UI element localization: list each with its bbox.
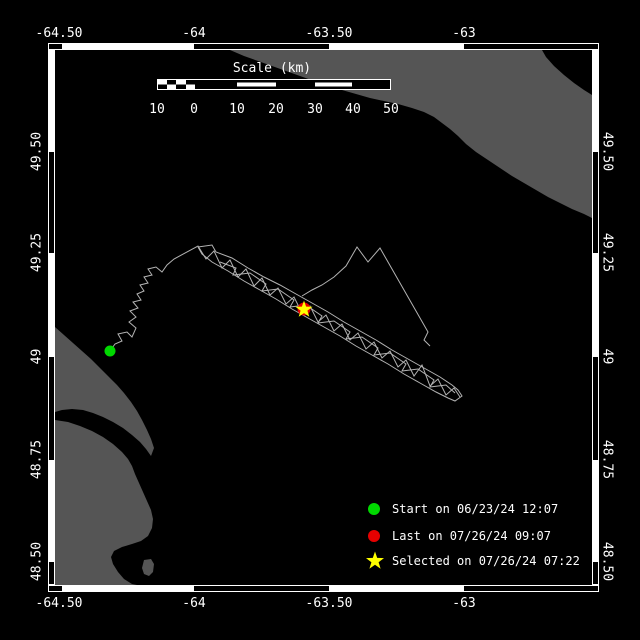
scalebar-segment-0-10 [195, 80, 238, 89]
legend-selected-label: Selected on 07/26/24 07:22 [392, 553, 602, 569]
map-canvas [0, 0, 640, 640]
legend-last-label: Last on 07/26/24 09:07 [392, 528, 602, 544]
scalebar-checker-section [158, 80, 195, 89]
track-path-main [110, 246, 460, 397]
start-position-marker [105, 346, 116, 357]
scalebar-segment-40-50 [352, 80, 390, 89]
axis-label-bottom-3: -63.50 [289, 596, 369, 611]
legend-start-label: Start on 06/23/24 12:07 [392, 501, 602, 517]
axis-label-bottom-2: -64 [154, 596, 234, 611]
map-viewport: -64.50 -64 -63.50 -63 -64.50 -64 -63.50 … [0, 0, 640, 640]
scalebar-segment-30-40 [315, 80, 353, 89]
axis-label-right-1: 49.50 [600, 112, 615, 192]
axis-label-left-5: 48.50 [30, 522, 45, 602]
scalebar-checker-cell [158, 80, 167, 89]
scalebar-label-40: 40 [335, 102, 371, 117]
scalebar [157, 79, 391, 90]
scalebar-label-10a: 10 [139, 102, 175, 117]
scalebar-checker-cell [167, 80, 176, 89]
scalebar-label-30: 30 [297, 102, 333, 117]
axis-label-right-2: 49.25 [600, 213, 615, 293]
legend-selected-star-icon [366, 552, 384, 569]
frame-band-left [48, 43, 55, 592]
scalebar-segment-20-30 [276, 80, 315, 89]
axis-label-right-4: 48.75 [600, 420, 615, 500]
axis-label-top-1: -64.50 [19, 26, 99, 41]
scalebar-segment-10-20 [237, 80, 276, 89]
legend-last-dot [368, 530, 380, 542]
axis-label-left-1: 49.50 [30, 112, 45, 192]
scalebar-label-50: 50 [373, 102, 409, 117]
axis-label-top-2: -64 [154, 26, 234, 41]
scalebar-label-20: 20 [258, 102, 294, 117]
axis-label-bottom-4: -63 [424, 596, 504, 611]
scalebar-label-10b: 10 [219, 102, 255, 117]
scalebar-title: Scale (km) [192, 61, 352, 76]
land-small-island [142, 559, 154, 576]
legend-start-dot [368, 503, 380, 515]
scalebar-checker-cell [186, 80, 195, 89]
axis-label-top-4: -63 [424, 26, 504, 41]
axis-label-left-3: 49 [30, 317, 45, 397]
axis-label-right-3: 49 [600, 317, 615, 397]
scalebar-label-0: 0 [176, 102, 212, 117]
axis-label-top-3: -63.50 [289, 26, 369, 41]
scalebar-checker-cell [176, 80, 185, 89]
track-path-spur [302, 247, 430, 346]
axis-label-left-4: 48.75 [30, 420, 45, 500]
axis-label-left-2: 49.25 [30, 213, 45, 293]
land-gaspe-coast [55, 420, 155, 587]
